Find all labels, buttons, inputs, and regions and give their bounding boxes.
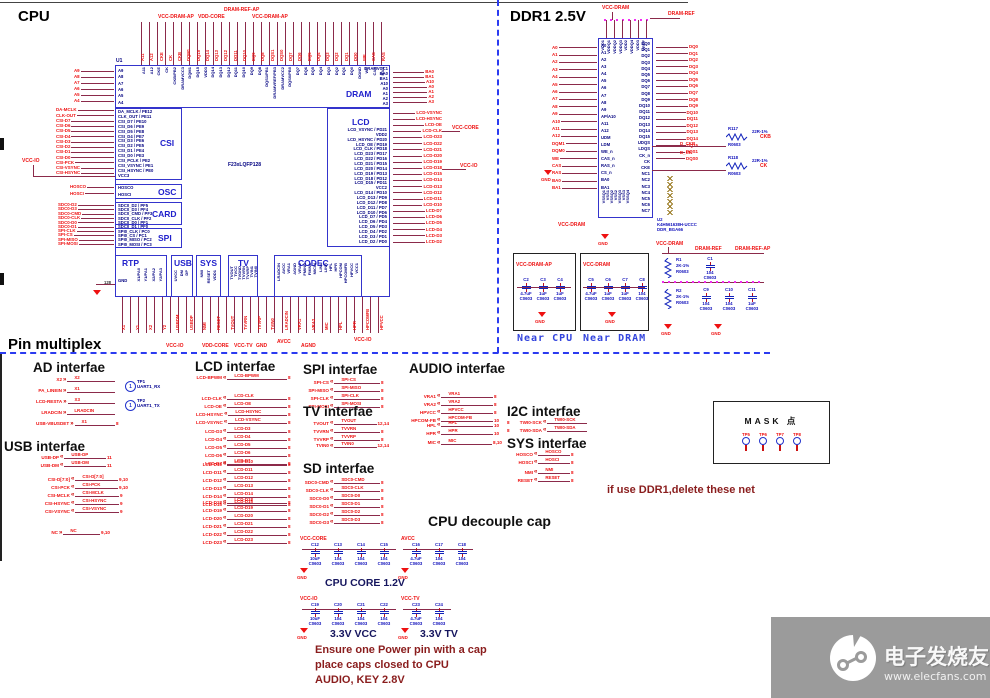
net-row: HOSCI [70,191,115,198]
signal-row: USB-DM«USB-DM11 [33,461,115,469]
net-label: VRA1 [298,300,302,330]
near-dram-caption: Near DRAM [583,333,646,344]
pin-label: VRA1 [287,263,291,274]
sheet-top-border [0,2,688,3]
capacitor: C111uFC0603 [742,288,762,312]
net-label: USBDM [176,300,180,330]
net-label: LCD-HSYNC [416,117,442,121]
net-label: DQS0 [280,27,284,61]
net-label: DQ5 [689,78,698,82]
net-label: DQ3 [326,27,330,61]
watermark-url: www.elecfans.com [884,670,986,683]
near-cpu-caps: C24.7uFC0603C31uFC0603C41uFC0603 [519,278,567,302]
capacitor: C234.7uFC0603 [406,603,426,627]
schematic-canvas: CPU VCC-DRAM-AP VDD-CORE DRAM-REF-AP VCC… [0,0,990,698]
spi-rows: SPI-CS«SPI-CS8SPI-MISO«SPI-MISO8SPI-CLK«… [303,378,389,402]
pin-label: LDM [601,143,625,147]
net-label: NMI [203,300,207,330]
testpoint-circle [776,437,784,445]
net-row: WE [552,155,598,162]
pin-label: A1 [601,51,625,55]
net-label: A5 [74,93,80,97]
net-label: DQS1 [271,27,275,61]
net-label: DQ15 [197,27,201,61]
net-label: Y2 [163,300,167,330]
watermark: 电子发烧友 www.elecfans.com [771,617,990,698]
pin-label: HOSCI [118,193,148,197]
pin-label: CS_n [601,171,625,175]
net-label: HOSCI [70,192,84,196]
cpu-block-sys-label: SYS [200,258,217,268]
resistor-package: R0603 [728,171,741,176]
power-flag-bottom-avcc: AVCC [277,339,291,345]
capacitor: C31uFC0603 [536,278,550,302]
lcd-rows-ctrl: LCD-CLK«LCD-CLK8LCD-OE«LCD-OE8LCD-HSYNC«… [196,394,296,420]
net-label: LCD-D18 [423,166,442,170]
pin-label: VSSQ4 [626,190,630,203]
net-label: LCD-D10 [423,203,442,207]
net-label: LCD-D21 [423,148,442,152]
pin-label: DQ15 [196,67,200,77]
sys-pins: NMIRESETVDD1 [200,270,217,295]
net-label: DQ11 [687,117,698,121]
net-label: A4 [552,75,558,79]
signal-row: LCD-RESTA»X3 [36,397,124,406]
pin-label: DQ13 [630,123,650,127]
gnd-symbol [538,312,546,317]
refnet-dram-ref: DRAM-REF [695,246,722,252]
sd-interface-title: SD interfae [303,461,374,476]
wire [652,170,726,171]
power-flag-bottom-vcc-io: VCC-IO [166,343,184,349]
ad-interface-title: AD interfae [33,360,105,375]
near-cpu-caption: Near CPU [517,333,573,344]
dram-left-nets: A9A8A7A6A5A4 [74,68,115,104]
sheet-left-border [0,353,2,561]
power-flag-bottom-gnd: GND [256,343,267,349]
pin-label: A3 [358,102,388,106]
pin-label: CAS_n [601,157,625,161]
net-label: A0 [552,46,558,50]
pinmux-section-title: Pin multiplex [8,336,101,353]
pin-label: DQ6 [304,67,308,75]
gnd-symbol [401,568,409,573]
gnd-label: GND [535,319,545,324]
pin-label: DQ8 [258,67,262,75]
signal-row: HPR«HPR10 [410,429,502,437]
note-line: Ensure one Power pin with a cap [315,643,487,658]
power-flag-vdd-core: VDD-CORE [198,14,225,20]
gnd-label: GND [541,177,551,182]
resistor-package: R0603 [728,142,741,147]
wire [652,146,726,147]
capacitor: C54.7uFC0603 [584,278,598,302]
net-label: CAS [372,27,376,61]
capacitor: C22104C0603 [374,603,394,627]
nc-signal-row: NC»NC9,10 [32,528,110,538]
pin-label: DM [180,270,184,276]
pin-label: A12 [150,67,154,74]
power-flag-bottom-vdd-core: VDD-CORE [202,343,229,349]
net-label: DQ4 [689,71,698,75]
ddr-right-pins: DQ0DQ1DQ2DQ3DQ4DQ5DQ6DQ7DQ8DQ9DQ10DQ11DQ… [630,42,650,214]
lcd-rows-d10-d15: LCD-D10«LCD-D108LCD-D11«LCD-D118LCD-D12«… [196,460,296,492]
pin-label: VDD3 [204,67,208,78]
net-row: D_CK [680,149,700,158]
pin-label: NC7 [630,209,650,213]
net-label: A7 [74,81,80,85]
pin-label: DQ4 [630,67,650,71]
ddr-section-title: DDR1 2.5V [510,8,586,25]
net-label: A8 [74,75,80,79]
ad-interface-rows: X2»X2PA_LINEIN»X1LCD-RESTA»X3LRADCIN»LRA… [36,375,124,428]
pin-label: CK_n [630,154,650,158]
pin-label: DQ3 [327,67,331,75]
net-label: A6 [74,87,80,91]
lcd-nets: LCD-VSYNCLCD-HSYNCLCD-OELCD-CLKLCD-D23LC… [392,110,442,245]
refnet-power: VCC-DRAM [656,241,683,247]
net-label: A3 [552,68,558,72]
cpu-chip-ref: U1 [116,58,122,64]
resistor-ref: R1 [676,257,682,262]
pin-label: DQ0 [630,42,650,46]
signal-row: TVIN0«TVIN012,14 [303,441,389,450]
pin-label: DQ2 [335,67,339,75]
pin-label: A9 [601,108,625,112]
watermark-brand: 电子发烧友 [884,641,989,671]
pin-label: LDQS [630,147,650,151]
net-label: CK [169,27,173,61]
audio-rows: VRA1«VRA18VRA2«VRA28HPVCC«HPVCC8HPCOM-FB… [410,392,502,414]
net-label: DQ6 [689,84,698,88]
net-label: DQ5 [308,27,312,61]
lcd-rows-pwm: LCD-BPWM«LCD-BPWM8 [196,373,296,383]
net-label: A7 [552,97,558,101]
capacitor: C15104C0603 [374,543,394,567]
net-row: RAS [552,170,598,177]
net-label: RESET [217,300,221,330]
signal-row: LCD-D23«LCD-D238 [196,538,296,546]
gnd-symbol [300,628,308,633]
net-label: CKB [178,27,182,61]
capacitor: C71uFC0603 [618,278,632,302]
lcd-pins: LCD_VSYNC / PD21VDD2LCD_HSYNC / PD20LCD_… [330,128,387,244]
net-label: A12 [552,134,560,138]
signal-row: HOSCO«HOSCO8 [507,450,579,458]
gnd-label: GND [598,241,608,246]
pin-label: NC3 [630,185,650,189]
capacitor: C164.7uFC0603 [406,543,426,567]
net-row: CAS [552,163,598,170]
net-row: LCD-D2 [392,239,442,245]
net-label: DQ11 [234,27,238,61]
pin-label: Y2/PA3 [159,268,163,282]
net-row: A10 [552,118,598,125]
net-label: DQ3 [689,65,698,69]
gnd-symbol [401,628,409,633]
net-label: SPI-MOSI [58,242,78,246]
power-flag-bottom-vcc-io2: VCC-IO [354,337,372,343]
net-row: A5 [552,81,598,88]
signal-row: RESET«RESET8 [507,476,579,484]
csi-signal-rows: CSI-D[7:0]«CSI-D[7:0]9,10CSI-PCK«CSI-PCK… [44,475,128,507]
i2c-rows: 8TWI0-SCK«TWI0-SCK8TWI0-SDA«TWI0-SDA [507,418,587,431]
decouple-title: CPU decouple cap [428,513,551,529]
resistor-symbol [726,162,748,170]
net-label: DQ1 [345,27,349,61]
dram-right-pins: DRAMVCC1BA0BA1A10A0A1A2A3 [358,67,388,106]
net-label: DQ2 [689,58,698,62]
pin-label: NC4 [630,191,650,195]
pin-label: DQ7 [630,85,650,89]
net-label: LCD-D14 [423,178,442,182]
net-label: DQM1 [552,142,565,146]
power-flag-vcc-io-right: VCC-IO [460,163,478,169]
net-label: LCD-OE [425,123,442,127]
pin-label: LCD_D2 / PD0 [330,240,387,244]
pin-label: DRAMVCC3 [181,67,185,90]
signal-row: NMI«NMI8 [507,468,579,476]
power-flag-dram-ref-top: DRAM-REF [668,11,695,17]
gnd-label: GND [661,331,671,336]
pin-label: NC2 [630,178,650,182]
net-label: LCD-D15 [423,172,442,176]
resistor-symbol [726,133,748,141]
capacitor: C41uFC0603 [553,278,567,302]
testpoint: TP6 [759,432,767,451]
net-label: X1 [122,300,126,330]
cpu-chip-part: F23xLQFP128 [228,162,261,168]
pin-label: DQ12 [227,67,231,77]
pin-label: HPCOMFB [344,263,348,283]
capacitor: C8104C0603 [635,278,649,302]
pin-label: NC1 [630,172,650,176]
pin-label: DQ14 [630,129,650,133]
net-label: DQ14 [206,27,210,61]
power-flag-vcc-dram-top: VCC-DRAM [602,5,629,11]
pin-label: NC6 [630,203,650,207]
csi-pins: DA_MCLK / PE12CLK_OUT / PE11CSI_D7 / PE1… [118,110,162,178]
sheet-left-mark [0,138,4,150]
capacitor: C9104C0603 [696,288,716,312]
net-row: A2 [552,59,598,66]
net-label: DQ0 [689,45,698,49]
net-label: A8 [552,105,558,109]
net-label: DQM0 [552,149,565,153]
pin-label: HOSCO [118,186,148,190]
pin-label: DQ10 [242,67,246,77]
power-flag-bottom-vcc-tv: VCC-TV [234,343,253,349]
power-flag-vcc-io-left: VCC-IO [22,158,40,164]
net-row: A3 [392,100,434,105]
section-divider-horizontal [0,352,770,354]
net-label: LCD-VSYNC [416,111,442,115]
resistor-symbol [664,258,672,278]
net-label: LCD-D12 [423,191,442,195]
net-row: A4 [74,98,115,104]
pin-label: X1/PA0 [137,268,141,282]
osc-pins: HOSCOHOSCI [118,186,148,197]
pin-label: UVCC [174,270,178,281]
capacitor: C21104C0603 [351,603,371,627]
decouple-caps-vcc-tv: C234.7uFC0603C24104C0603 [406,603,449,627]
power-flag-dram-ref-ap: DRAM-REF-AP [224,7,259,13]
osc-nets: HOSCOHOSCI [70,184,115,197]
gnd-symbol [300,568,308,573]
net-row: DQM1 [552,140,598,147]
net-label: LCD-D11 [424,197,442,201]
net-row: A0 [552,44,598,51]
resistor-package: R0603 [676,300,689,305]
pin-label: MICIN [313,263,317,274]
decouple-caption-tv: 3.3V TV [420,628,458,640]
sys-rows-2: NMI«NMI8RESET«RESET8 [507,468,579,480]
tv-rows-2: TVIN0«TVIN012,14 [303,441,389,450]
net-label: TVIN0 [271,300,275,330]
net-label: A5 [552,83,558,87]
section-divider-vertical [497,0,499,353]
pin-label: CKE [630,166,650,170]
pin-label: DQ15 [630,135,650,139]
spi-nets: SPI-CLKSPI-CSSPI-MISOSPI-MOSI [58,229,115,246]
wire [650,18,680,19]
capacitor: C17104C0603 [429,543,449,567]
pin-label: LINL [319,263,323,272]
net-row: SPI-MOSI [58,242,115,246]
net-row: A3 [552,66,598,73]
signal-row: NC»NC9,10 [32,528,110,537]
mask-title: MASK 点 [713,415,830,427]
pin-label: DQM1 [188,67,192,79]
testpoint: TP8 [793,432,801,451]
pin-label: DQS1/PB1 [265,67,269,87]
pin-label: DQ5 [630,73,650,77]
csi-nets: DA-MCLKCLK-OUTCSI-D7CSI-D6CSI-D5CSI-D4CS… [56,108,115,176]
spi-interface-title: SPI interfae [303,362,377,377]
pin-label: WE_n [601,150,625,154]
resistor-value: 2K-1% [676,263,689,268]
ddr-left-nets: A0A1A2A3A4A5A6A7A8A9A10A11A12DQM1DQM0WEC… [552,44,598,192]
net-label: HPCOMFB [366,300,370,330]
pin-label: DRAMVCC2 [281,67,285,90]
pin-label: A11 [142,67,146,74]
pin-label: A7 [601,94,625,98]
pin-label: CK [630,160,650,164]
capacitor: C18104C0603 [452,543,472,567]
net-label: A11 [552,127,560,131]
net-label: TVVRP [258,300,262,330]
pin-label: A11 [601,122,625,126]
gnd-label: GND [711,331,721,336]
net-label: MIC [325,300,329,330]
net-label: A9 [74,69,80,73]
resistor-package: R0603 [676,269,689,274]
elecfans-logo-icon [828,633,878,683]
testpoint: TP7 [776,432,784,451]
refnet-caps: C9104C0603C10104C0603C111uFC0603 [696,288,762,312]
net-label: TVVRN [244,300,248,330]
net-label: CSI-HSYNC [56,171,80,175]
gnd-label: GND [297,575,307,580]
net-label: LCD-D6 [426,215,442,219]
ddr-clock-nets: D_CKBD_CK [680,140,700,158]
net-label: A4 [74,99,80,103]
net-label: HPL [339,300,343,330]
pin-label: DQ9 [630,98,650,102]
audio-interface-title: AUDIO interfae [409,361,505,376]
testpoint-circle: 1 [125,381,136,392]
signal-row: LRADCIN»LRADCIN [36,408,124,417]
testpoint-circle [793,437,801,445]
decouple-caption-vcc: 3.3V VCC [330,628,377,640]
net-label: VRA2 [312,300,316,330]
signal-row: SDC0-D3«SDC0-D38 [303,518,389,526]
pin-label: NMI [200,270,204,277]
power-flag-vcc-dram-bottom: VCC-DRAM [558,222,585,228]
cpu-top-net-labels: A11A12CKECKCKBDQM1DQ15DQ14DQ13DQ12DQ11DQ… [141,27,386,61]
pin-label: TVIN0 [254,266,258,277]
gnd-symbol [93,290,101,295]
pin-label: RAS_n [601,164,625,168]
cpu-section-title: CPU [18,8,50,25]
net-label: DQ9 [252,27,256,61]
ddr-chip-footprint: DDR_BGA66 [657,227,683,232]
net-label: DQ12 [687,124,698,128]
gnd-symbol [664,324,672,329]
net-label: DQ10 [687,111,698,115]
pin-label: DQ9 [250,67,254,75]
pin-label: DQS0/PB0 [288,67,292,87]
cpu-bottom-net-labels: X1Y1X2Y2USBDMUSBDPNMIRESETTVOUTTVVRNTVVR… [122,300,384,330]
spi-pins: SPI0_CLK / PC0SPI0_CS / PC1SPI0_MISO / P… [118,230,162,246]
resistor-ref: R2 [676,288,682,293]
net-label: LCD-D22 [423,142,442,146]
testpoint-label: TP1 UART1_RX [137,379,160,390]
net-label: LCD-CLK [422,129,442,133]
pin-label: CKB/PB2 [173,67,177,85]
layout-notes: Ensure one Power pin with a capplace cap… [315,643,487,688]
pin-label: DQ2 [630,54,650,58]
net-label: DQ12 [224,27,228,61]
refnet-dram-ref-ap: DRAM-REF-AP [735,246,770,252]
testpoint-circle [759,437,767,445]
net-label: LRADCIN [285,300,289,330]
net-row: D_CKB [680,140,700,149]
pin-label: A3 [601,65,625,69]
net-label: HOSCO [70,185,86,189]
resistor-symbol [664,289,672,309]
wire [33,176,115,177]
net-label: DQ10 [243,27,247,61]
pin-label: DP [185,270,189,276]
resistor-value: 2K-1% [676,294,689,299]
rtp-gnd-pin: GND [118,279,127,283]
net-label: RAS [552,171,561,175]
net-label: LCD-D20 [423,154,442,158]
pin-label: VDD1 [213,270,217,281]
dram-right-nets: BA0BA1A10A0A1A2A3 [392,70,434,105]
pin-label: A12 [601,129,625,133]
pin-label: X2/PA2 [152,268,156,282]
decouple-caption-core: CPU CORE 1.2V [325,577,405,589]
capacitor: C24.7uFC0603 [519,278,533,302]
net-row: A11 [552,125,598,132]
pin-label: NC5 [630,197,650,201]
ddr-left-pins: A0A1A2A3A4A5A6A7A8A9AP/A10A11A12UDMLDMWE… [601,44,625,190]
testpoint-stem [762,445,764,451]
sys-rows: HOSCO«HOSCO8HOSCI«HOSCI8 [507,450,579,462]
pin-label: DQ7 [296,67,300,75]
